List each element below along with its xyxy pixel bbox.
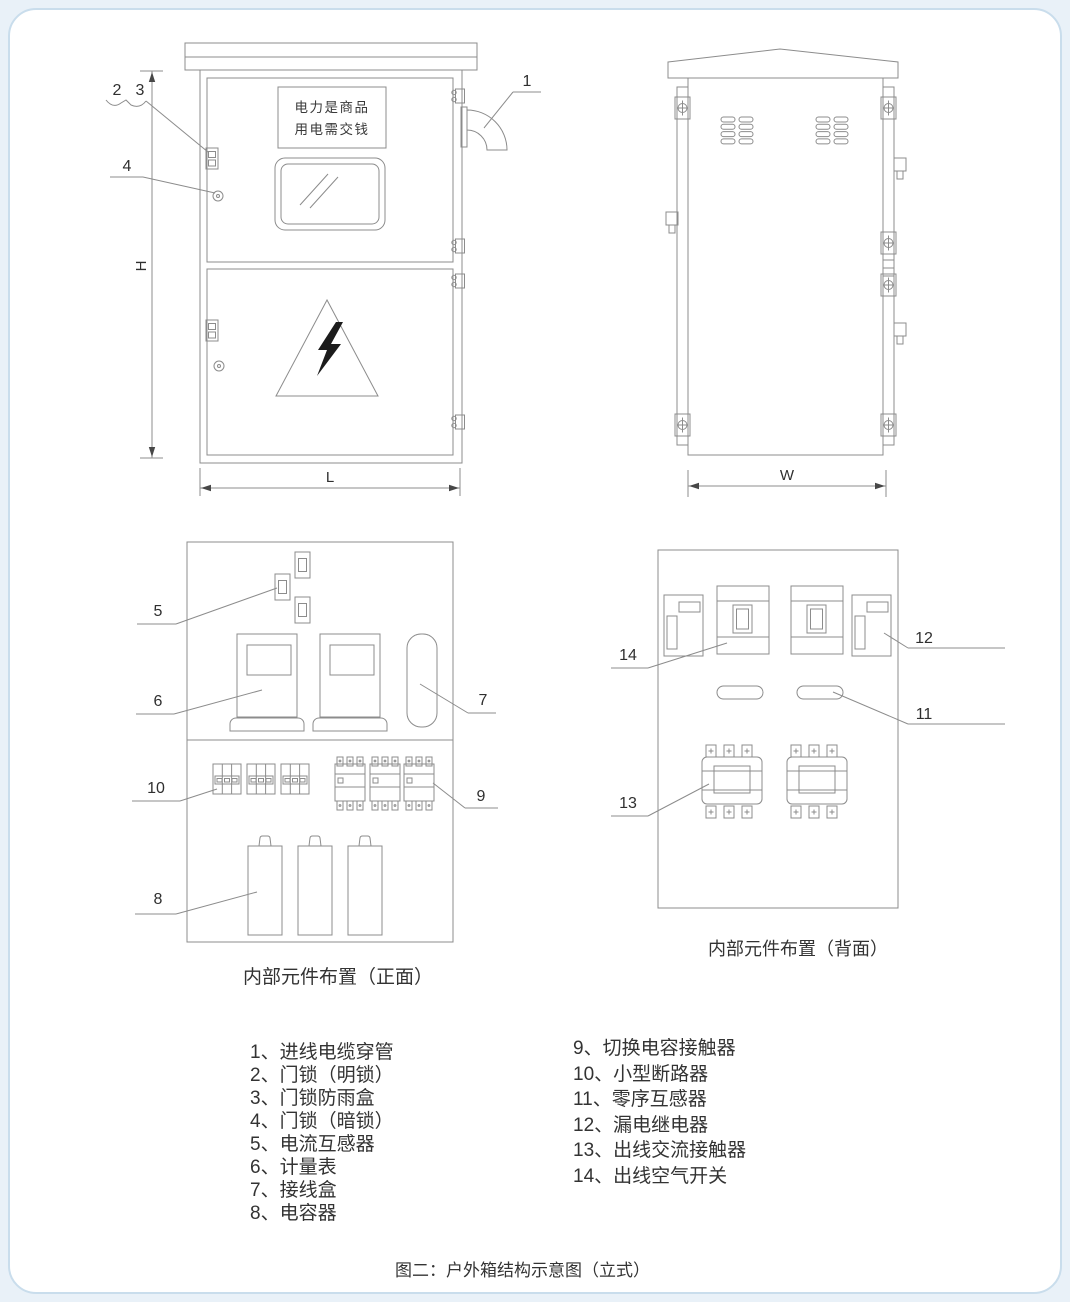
warning-sign: 电力是商品 用电需交钱	[278, 87, 386, 148]
rail-bracket	[894, 158, 906, 179]
zero-sequence-transformer	[797, 686, 843, 699]
legend-item-2: 2、门锁（明锁）	[250, 1064, 394, 1087]
junction-box	[407, 634, 437, 727]
callout-6: 6	[136, 690, 262, 714]
mini-circuit-breaker	[281, 764, 309, 794]
legend-item-3: 3、门锁防雨盒	[250, 1087, 394, 1110]
callout-8: 8	[135, 891, 257, 914]
lightning-bolt-icon	[317, 322, 343, 376]
cabinet-roof	[185, 43, 477, 70]
hinge-icon	[452, 239, 465, 253]
callout-13: 13	[611, 784, 709, 816]
legend-item-12: 12、漏电继电器	[573, 1113, 746, 1139]
leakage-relay	[852, 595, 891, 656]
hinge-icon	[452, 415, 465, 429]
zero-sequence-transformer	[717, 686, 763, 699]
svg-text:9: 9	[477, 788, 486, 805]
callout-2-3: 2 3	[106, 82, 208, 152]
svg-text:5: 5	[154, 603, 163, 620]
svg-text:1: 1	[523, 73, 532, 90]
front-panel	[187, 542, 453, 942]
legend-item-8: 8、电容器	[250, 1202, 394, 1225]
svg-text:3: 3	[136, 82, 145, 99]
side-exterior-view: W	[666, 49, 906, 497]
callout-5: 5	[137, 588, 277, 624]
front-layout-caption: 内部元件布置（正面）	[243, 962, 433, 989]
legend-item-11: 11、零序互感器	[573, 1087, 746, 1113]
page: { "figure_caption": "图二：户外箱结构示意图（立式）", "…	[0, 0, 1070, 1302]
energy-meter	[230, 634, 304, 731]
back-layout-caption: 内部元件布置（背面）	[708, 935, 888, 961]
svg-text:10: 10	[147, 780, 165, 797]
callout-4: 4	[110, 158, 215, 193]
callout-11: 11	[833, 692, 1005, 724]
dim-h-label: H	[133, 261, 150, 272]
capacitor	[248, 836, 282, 935]
capacitor	[348, 836, 382, 935]
svg-text:13: 13	[619, 795, 637, 812]
legend-item-6: 6、计量表	[250, 1156, 394, 1179]
meter-window	[275, 158, 385, 230]
svg-text:2: 2	[113, 82, 122, 99]
hinge-icon	[452, 89, 465, 103]
side-roof	[668, 49, 898, 78]
rail-bracket	[894, 323, 906, 344]
internal-layout-front: 5 6 7 10 9 8	[132, 542, 498, 942]
ac-contactor	[702, 745, 762, 818]
dimension-h: H	[133, 71, 163, 458]
legend-item-9: 9、切换电容接触器	[573, 1036, 746, 1062]
side-body	[688, 78, 883, 455]
lower-door	[207, 269, 453, 455]
front-exterior-view: 电力是商品 用电需交钱	[106, 43, 541, 496]
svg-text:12: 12	[915, 630, 933, 647]
right-rail	[883, 87, 894, 445]
lower-door-lock	[206, 320, 224, 371]
current-transformer	[275, 574, 290, 600]
svg-text:8: 8	[154, 891, 163, 908]
capacitor-contactor	[404, 757, 434, 810]
sign-line2: 用电需交钱	[295, 121, 370, 137]
danger-triangle-icon	[276, 300, 378, 396]
energy-meter	[313, 634, 387, 731]
dimension-l: L	[200, 468, 460, 496]
mini-circuit-breaker	[247, 764, 275, 794]
callout-12: 12	[884, 630, 1005, 648]
capacitor	[298, 836, 332, 935]
mini-circuit-breaker	[213, 764, 241, 794]
callout-7: 7	[420, 684, 496, 713]
callout-10: 10	[132, 780, 217, 801]
dimension-w: W	[688, 467, 886, 497]
cabinet-diagram: 电力是商品 用电需交钱	[0, 0, 1070, 1302]
legend-column-left: 1、进线电缆穿管 2、门锁（明锁） 3、门锁防雨盒 4、门锁（暗锁） 5、电流互…	[250, 1041, 394, 1225]
door-hinges	[452, 89, 465, 429]
capacitor-contactor	[335, 757, 365, 810]
figure-caption: 图二：户外箱结构示意图（立式）	[395, 1256, 650, 1281]
svg-text:6: 6	[154, 693, 163, 710]
svg-text:14: 14	[619, 647, 637, 664]
legend-item-14: 14、出线空气开关	[573, 1164, 746, 1190]
air-switch	[791, 586, 843, 654]
legend-item-5: 5、电流互感器	[250, 1133, 394, 1156]
legend-item-13: 13、出线交流接触器	[573, 1138, 746, 1164]
svg-text:4: 4	[123, 158, 132, 175]
ac-contactor	[787, 745, 847, 818]
svg-text:7: 7	[479, 692, 488, 709]
legend-column-right: 9、切换电容接触器 10、小型断路器 11、零序互感器 12、漏电继电器 13、…	[573, 1036, 746, 1189]
capacitor-contactor	[370, 757, 400, 810]
legend-item-1: 1、进线电缆穿管	[250, 1041, 394, 1064]
dim-w-label: W	[780, 467, 795, 484]
left-rail	[677, 87, 688, 445]
legend-item-7: 7、接线盒	[250, 1179, 394, 1202]
internal-layout-back: 14 12 11 13	[611, 550, 1005, 908]
sign-line1: 电力是商品	[295, 100, 370, 115]
legend-item-10: 10、小型断路器	[573, 1062, 746, 1088]
cable-conduit	[461, 107, 507, 150]
current-transformer	[295, 552, 310, 578]
back-panel	[658, 550, 898, 908]
ventilation-louvers	[721, 117, 848, 144]
leakage-relay	[664, 595, 703, 656]
hinge-icon	[452, 274, 465, 288]
dim-l-label: L	[326, 469, 334, 486]
svg-text:11: 11	[916, 706, 933, 723]
rail-bracket	[666, 212, 678, 233]
legend-item-4: 4、门锁（暗锁）	[250, 1110, 394, 1133]
callout-9: 9	[433, 783, 498, 808]
current-transformer	[295, 597, 310, 623]
